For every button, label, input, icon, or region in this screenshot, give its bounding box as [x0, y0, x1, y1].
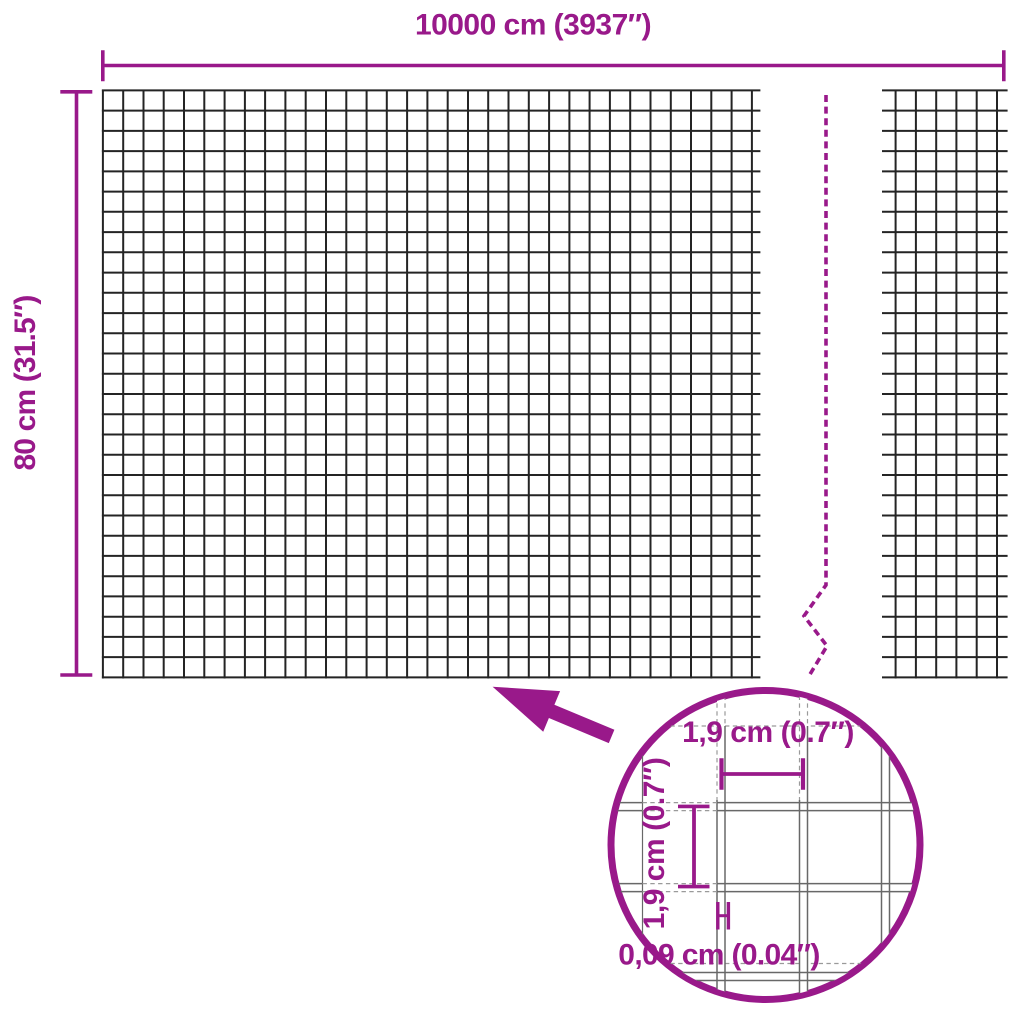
svg-text:0,09 cm (0.04″): 0,09 cm (0.04″): [618, 939, 819, 972]
svg-text:10000 cm (3937″): 10000 cm (3937″): [415, 8, 651, 41]
svg-text:80 cm (31.5″): 80 cm (31.5″): [9, 295, 42, 470]
svg-text:1,9 cm (0.7″): 1,9 cm (0.7″): [682, 716, 854, 749]
svg-text:1,9 cm (0.7″): 1,9 cm (0.7″): [638, 758, 671, 930]
